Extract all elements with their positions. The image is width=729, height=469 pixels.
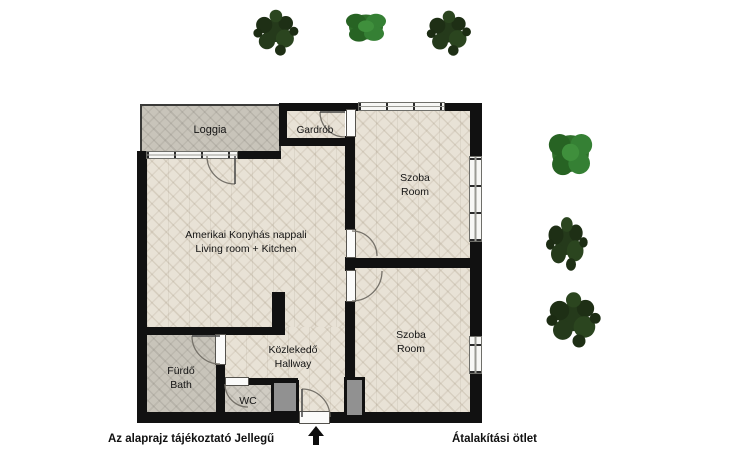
bathroom-label-hu: Fürdő bbox=[146, 364, 216, 378]
wall-kitchen-nook bbox=[272, 292, 285, 335]
wall-loggia-right bbox=[238, 151, 281, 159]
wall-between-rooms bbox=[345, 258, 470, 268]
bathroom-label-en: Bath bbox=[146, 378, 216, 392]
hallway-label-en: Hallway bbox=[243, 357, 343, 371]
tree-icon bbox=[541, 214, 591, 277]
shaft-block bbox=[344, 377, 365, 418]
tree-icon bbox=[243, 7, 307, 61]
remodel-idea-note: Átalakítási ötlet bbox=[452, 433, 537, 445]
loggia-label: Loggia bbox=[160, 123, 260, 138]
floor-plan-canvas: Loggia Gardrób Szoba Room Amerikai Konyh… bbox=[0, 0, 729, 469]
wc-door bbox=[225, 377, 249, 386]
room-bottom-label-hu: Szoba bbox=[361, 328, 461, 342]
room-top-door bbox=[346, 229, 356, 258]
wall-rooms bbox=[345, 136, 355, 230]
room-bottom-label-en: Room bbox=[361, 342, 461, 356]
wall-right bbox=[470, 242, 482, 337]
loggia-window bbox=[146, 151, 238, 159]
tree-icon bbox=[336, 5, 396, 49]
tree-icon bbox=[539, 289, 606, 354]
up-arrow-stem bbox=[313, 436, 319, 445]
living-room-label-hu: Amerikai Konyhás nappali bbox=[151, 228, 341, 242]
living-room-label-en: Living room + Kitchen bbox=[151, 242, 341, 256]
room-top-label: Szoba Room bbox=[365, 171, 465, 199]
hallway-label: Közlekedő Hallway bbox=[243, 343, 343, 371]
wall-gardrob-bottom bbox=[279, 138, 347, 146]
up-arrow-icon bbox=[308, 426, 324, 436]
room-bottom-door bbox=[346, 270, 356, 302]
room-bottom-window-east bbox=[469, 336, 482, 374]
gardrob-door bbox=[346, 109, 356, 137]
disclaimer-note: Az alaprajz tájékoztató Jellegű bbox=[108, 433, 274, 445]
wall-living-hall bbox=[137, 327, 285, 335]
room-top-label-hu: Szoba bbox=[365, 171, 465, 185]
entry-arrow bbox=[306, 426, 326, 446]
room-top-label-en: Room bbox=[365, 185, 465, 199]
bathroom-door bbox=[215, 334, 226, 365]
entry-door-threshold bbox=[299, 411, 330, 424]
living-room-label: Amerikai Konyhás nappali Living room + K… bbox=[151, 228, 341, 256]
room-top-window-north bbox=[358, 102, 445, 111]
room-bottom-label: Szoba Room bbox=[361, 328, 461, 356]
room-top-window-east bbox=[469, 156, 482, 242]
wc-label: WC bbox=[228, 394, 268, 408]
tree-icon bbox=[538, 121, 603, 186]
bathroom-label: Fürdő Bath bbox=[146, 364, 216, 392]
gardrob-label: Gardrób bbox=[284, 124, 346, 138]
shaft-block bbox=[271, 380, 299, 414]
wall-right bbox=[470, 103, 482, 157]
tree-icon bbox=[417, 8, 479, 61]
hallway-label-hu: Közlekedő bbox=[243, 343, 343, 357]
